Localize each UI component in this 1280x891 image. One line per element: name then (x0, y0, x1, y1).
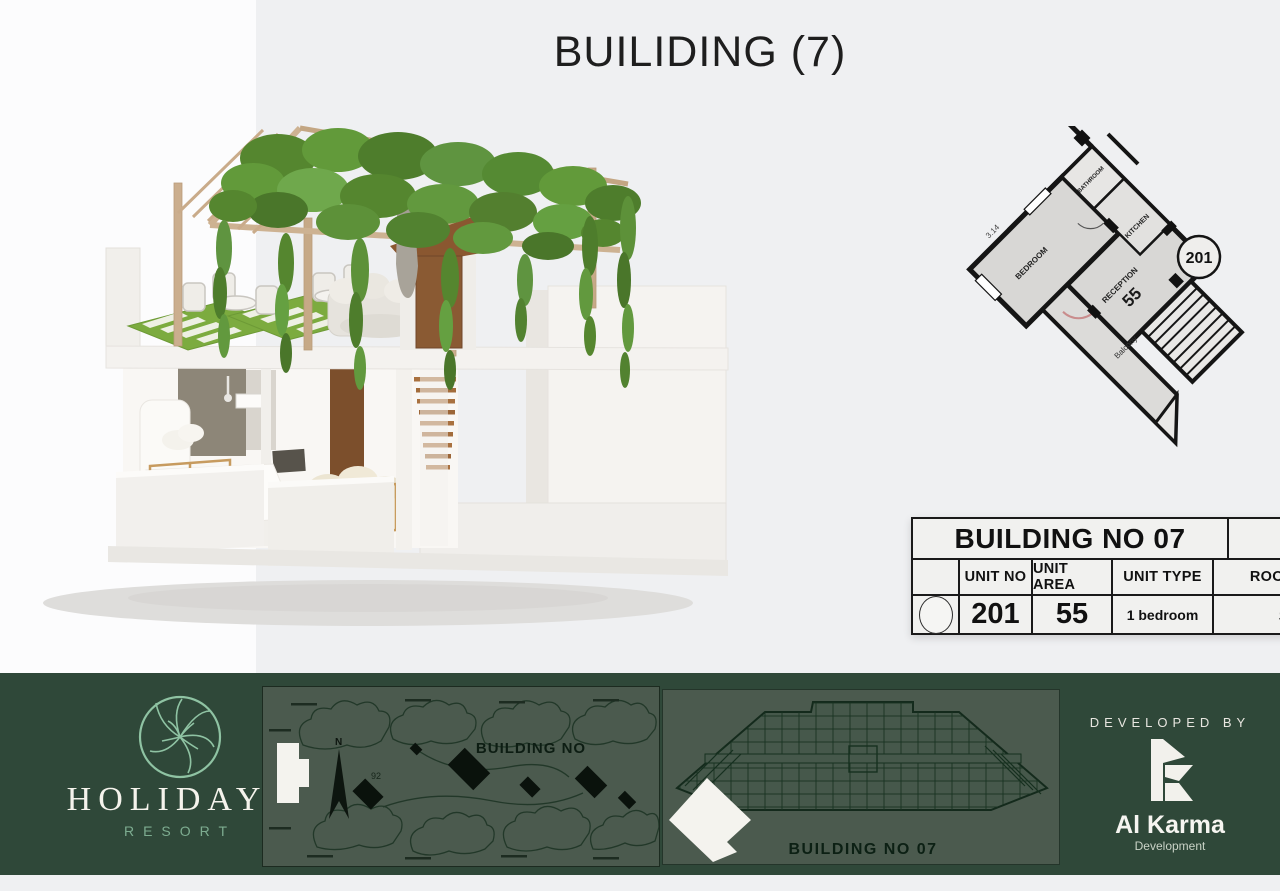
unit-info-table: BUILDING NO 07 UNIT NO UNIT AREA UNIT TY… (911, 517, 1280, 635)
sink (236, 394, 262, 408)
header-unit-area: UNIT AREA (1033, 560, 1113, 594)
unit-3d-render (28, 98, 748, 668)
tv (272, 449, 305, 473)
svg-text:N: N (335, 737, 342, 748)
site-map-title: BUILDING NO (476, 740, 586, 757)
developer-subtitle: Development (1080, 839, 1260, 853)
site-map-plot-label: 92 (371, 771, 381, 781)
render-illustration (28, 98, 748, 668)
developer-block: DEVELOPED BY Al Karma Development (1080, 673, 1260, 875)
floor-plan-svg: Balcony BEDROOM BATHROOM KITCHEN RECEPTI… (948, 126, 1248, 511)
table-title: BUILDING NO 07 (913, 519, 1229, 558)
header-unit-type: UNIT TYPE (1113, 560, 1214, 594)
table-title-spacer (1229, 519, 1280, 558)
brochure-page: BUILIDING (7) (0, 0, 1280, 891)
developed-by-label: DEVELOPED BY (1080, 715, 1260, 730)
site-map-panel: N 92 BUILDING NO (262, 686, 660, 867)
floor-strip-label: BUILDING NO 07 (788, 841, 937, 858)
cell-unit-no: 201 (960, 596, 1033, 633)
cell-unit-area: 55 (1033, 596, 1113, 633)
unit-marker-cell (913, 596, 960, 633)
footer: HOLIDAYS RESORT (0, 673, 1280, 875)
cell-unit-type: 1 bedroom (1113, 596, 1214, 633)
building-floor-strip-panel: BUILDING NO 07 (662, 689, 1060, 865)
header-blank (913, 560, 960, 594)
page-title: BUILIDING (7) (400, 28, 1000, 77)
pergola-foliage (209, 128, 641, 260)
site-map-unit-marker (277, 743, 309, 803)
svg-text:201: 201 (1186, 250, 1213, 267)
north-arrow-icon: N (329, 737, 349, 819)
cell-roof-area: 55 (1214, 596, 1280, 633)
unit-floor-plan: Balcony BEDROOM BATHROOM KITCHEN RECEPTI… (948, 126, 1248, 511)
header-roof-area: ROOF AREA (1214, 560, 1280, 594)
interior-stairs (396, 360, 456, 550)
holidays-leaf-logo-icon (132, 691, 228, 788)
unit-marker-circle (919, 596, 953, 634)
table-row: 201 55 1 bedroom 55 (913, 596, 1280, 633)
table-header-row: UNIT NO UNIT AREA UNIT TYPE ROOF AREA (913, 560, 1280, 596)
al-karma-logo-icon (1135, 737, 1205, 812)
unit-number-badge: 201 (1178, 236, 1220, 278)
header-unit-no: UNIT NO (960, 560, 1033, 594)
developer-name: Al Karma (1080, 811, 1260, 840)
